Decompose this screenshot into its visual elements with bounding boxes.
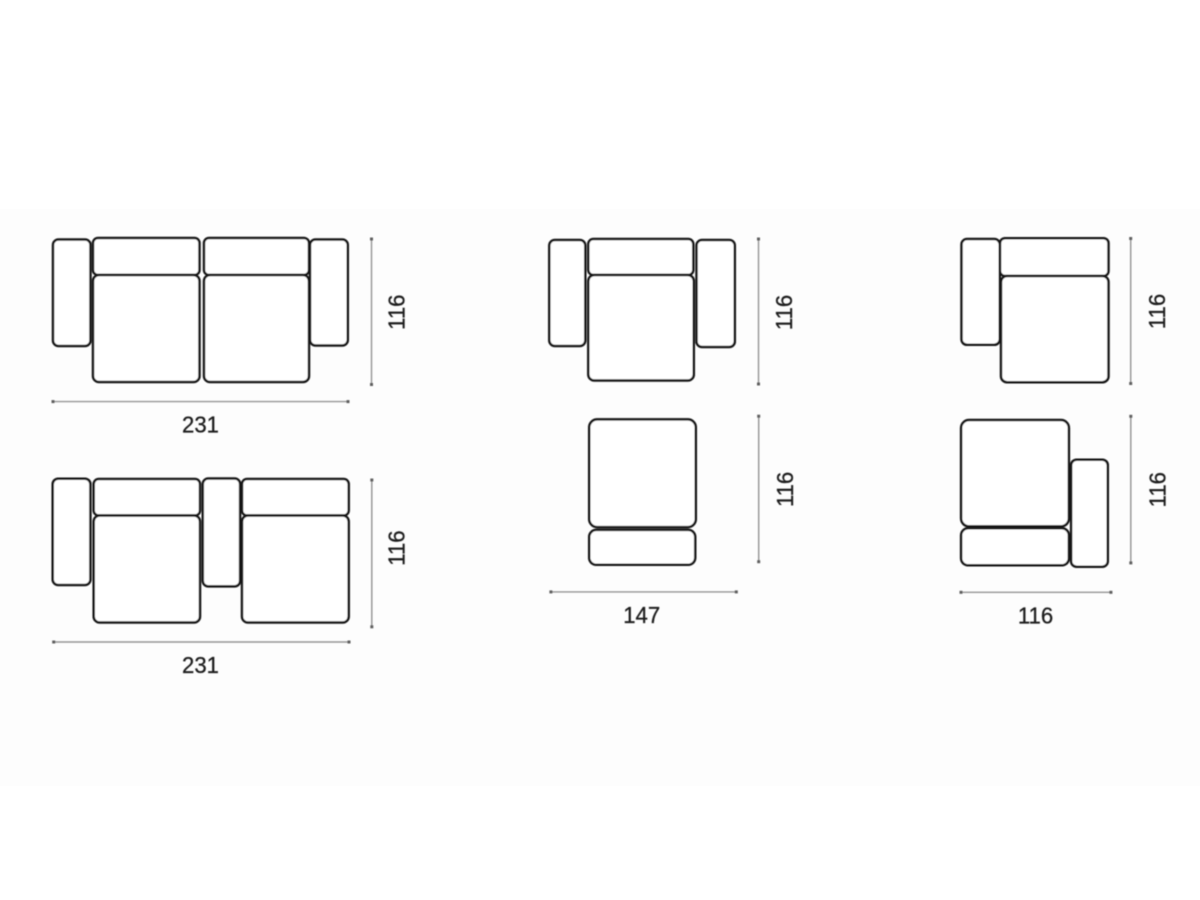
svg-text:116: 116 <box>1018 602 1053 629</box>
svg-text:116: 116 <box>383 295 410 330</box>
svg-text:116: 116 <box>771 472 798 507</box>
svg-text:116: 116 <box>1144 472 1171 507</box>
svg-text:231: 231 <box>182 411 219 438</box>
svg-text:231: 231 <box>182 651 219 678</box>
svg-text:116: 116 <box>770 295 797 330</box>
svg-text:116: 116 <box>383 530 410 565</box>
svg-text:116: 116 <box>1143 294 1170 329</box>
svg-text:147: 147 <box>623 601 660 628</box>
